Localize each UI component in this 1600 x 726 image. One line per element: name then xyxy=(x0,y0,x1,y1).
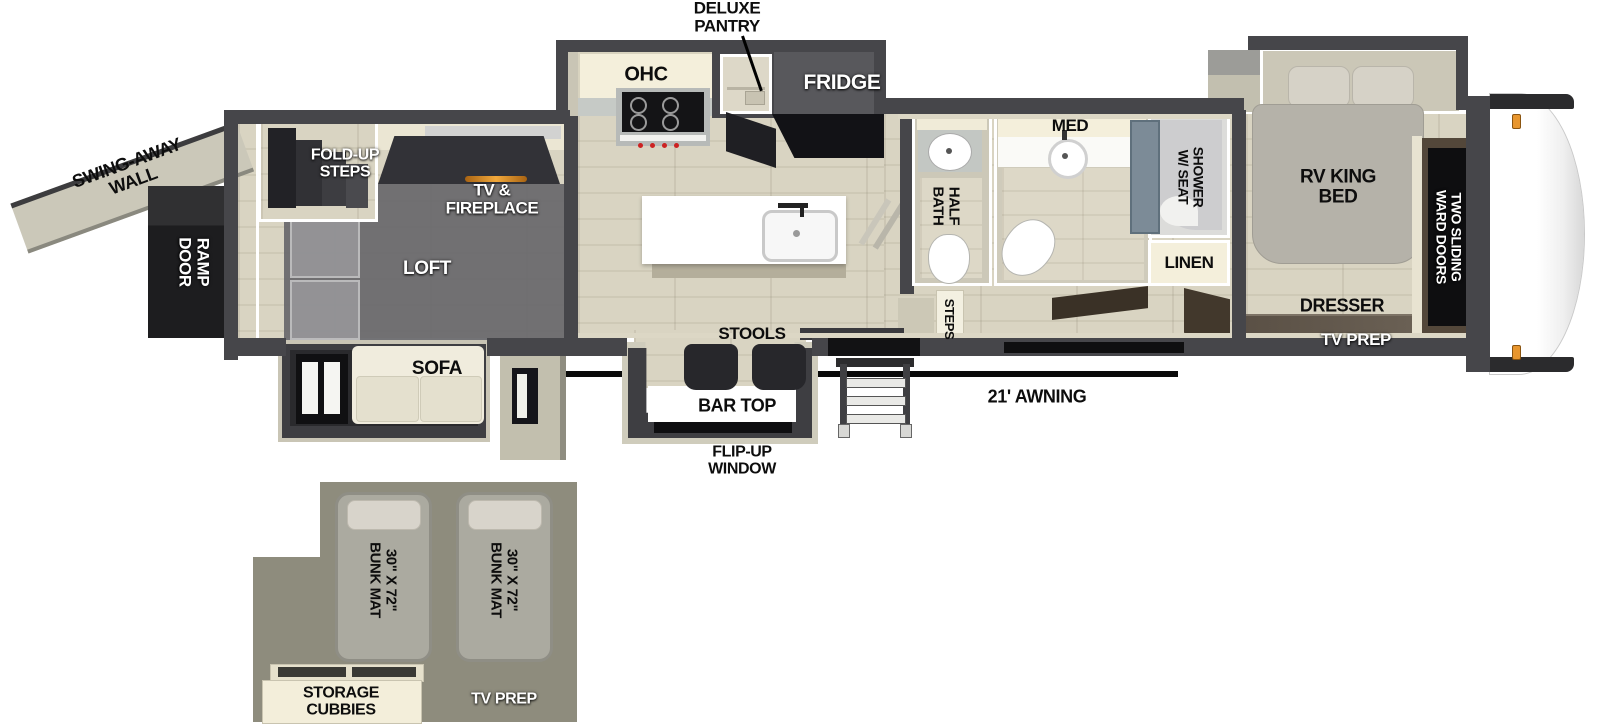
bedroom-slide-top-wall xyxy=(1248,36,1468,50)
bedroom-tv-prep-label: TV PREP xyxy=(1321,331,1391,349)
bottom-wall-mid xyxy=(487,338,627,356)
steps-label: STEPS xyxy=(942,299,956,340)
sofa-slide-window-pane-2 xyxy=(324,362,340,414)
storage-cubby-slot-2 xyxy=(352,667,416,677)
rv-king-bed-label: RV KING BED xyxy=(1300,167,1376,207)
sofa-seat-cushion-2 xyxy=(420,376,482,422)
tv-fireplace-label: TV & FIREPLACE xyxy=(446,181,539,216)
bath-sink xyxy=(1048,139,1088,179)
shower-label: SHOWER W/ SEAT xyxy=(1176,147,1205,208)
front-cap xyxy=(1490,94,1584,374)
garage-kitchen-wall xyxy=(564,116,578,340)
sofa-label: SOFA xyxy=(412,359,462,379)
marker-light-bottom xyxy=(1512,345,1521,360)
bath-sink-drain xyxy=(1062,153,1068,159)
front-wall xyxy=(1466,96,1490,372)
loft-tv-prep-label: TV PREP xyxy=(471,692,537,709)
stove xyxy=(616,88,710,146)
half-bath-label: HALF BATH xyxy=(930,187,961,226)
bed-pillow-1 xyxy=(1288,66,1350,108)
front-cap-top-band xyxy=(1490,94,1574,109)
shower-glass xyxy=(1130,120,1160,234)
awning-label: 21' AWNING xyxy=(988,388,1087,407)
island-sink xyxy=(762,210,838,262)
stool-2 xyxy=(752,344,806,390)
half-bath-sink-drain xyxy=(946,148,952,154)
sofa-slide-window-pane-1 xyxy=(302,362,318,414)
slide-end-window-pane xyxy=(517,374,527,418)
bath-top-wall xyxy=(884,98,1244,114)
ramp-door-label: RAMP DOOR xyxy=(176,237,211,286)
deluxe-pantry-label: DELUXE PANTRY xyxy=(694,0,761,35)
bottom-wall-entry-left xyxy=(812,338,828,356)
entry-door-opening xyxy=(828,338,920,356)
dresser-label: DRESSER xyxy=(1300,297,1384,316)
med-label: MED xyxy=(1052,117,1089,135)
bottom-window xyxy=(1004,342,1184,353)
bunk-mat-2-label: 30" X 72" BUNK MAT xyxy=(488,542,519,618)
marker-light-top xyxy=(1512,114,1521,129)
storage-cubby-slot-1 xyxy=(278,667,346,677)
storage-cubbies-label: STORAGE CUBBIES xyxy=(303,685,379,718)
bottom-wall-rear xyxy=(224,338,286,356)
rv-floorplan-canvas: SWING-AWAY WALL RAMP DOOR FOLD-UP STEPS … xyxy=(0,0,1600,726)
linen-label: LINEN xyxy=(1164,254,1213,272)
fold-up-steps-label: FOLD-UP STEPS xyxy=(311,147,379,180)
sink-drain xyxy=(793,230,800,237)
sink-faucet-stem xyxy=(800,203,804,217)
bed-pillow-2 xyxy=(1352,66,1414,108)
bunk-mat-1-label: 30" X 72" BUNK MAT xyxy=(367,542,398,618)
garage-top-wall xyxy=(224,110,570,124)
fridge-label: FRIDGE xyxy=(804,72,881,94)
entry-steps xyxy=(836,358,916,432)
bar-top-label: BAR TOP xyxy=(698,397,776,416)
stool-1 xyxy=(684,344,738,390)
ohc-label: OHC xyxy=(624,65,667,86)
bunk-pillow-2 xyxy=(468,500,542,530)
fold-up-step-1 xyxy=(268,128,296,208)
half-bath-toilet xyxy=(928,234,970,284)
pantry-cabinet xyxy=(720,54,772,114)
front-cap-bottom-band xyxy=(1490,357,1574,372)
wardrobe-trim xyxy=(1412,136,1422,336)
sofa-seat-cushion-1 xyxy=(356,376,419,422)
rear-wall xyxy=(224,110,238,360)
island-base xyxy=(652,262,846,278)
kitchen-slide-left-wall xyxy=(556,40,568,118)
bar-top-surface xyxy=(654,422,792,433)
kitchen-slide-top-wall xyxy=(556,40,886,52)
bunk-pillow-1 xyxy=(347,500,421,530)
ward-doors-label: TWO SLIDING WARD DOORS xyxy=(1434,190,1463,284)
stools-label: STOOLS xyxy=(718,325,785,343)
loft-label: LOFT xyxy=(403,259,451,279)
flip-up-window-label: FLIP-UP WINDOW xyxy=(708,444,776,477)
bedroom-left-wall xyxy=(1232,110,1246,356)
